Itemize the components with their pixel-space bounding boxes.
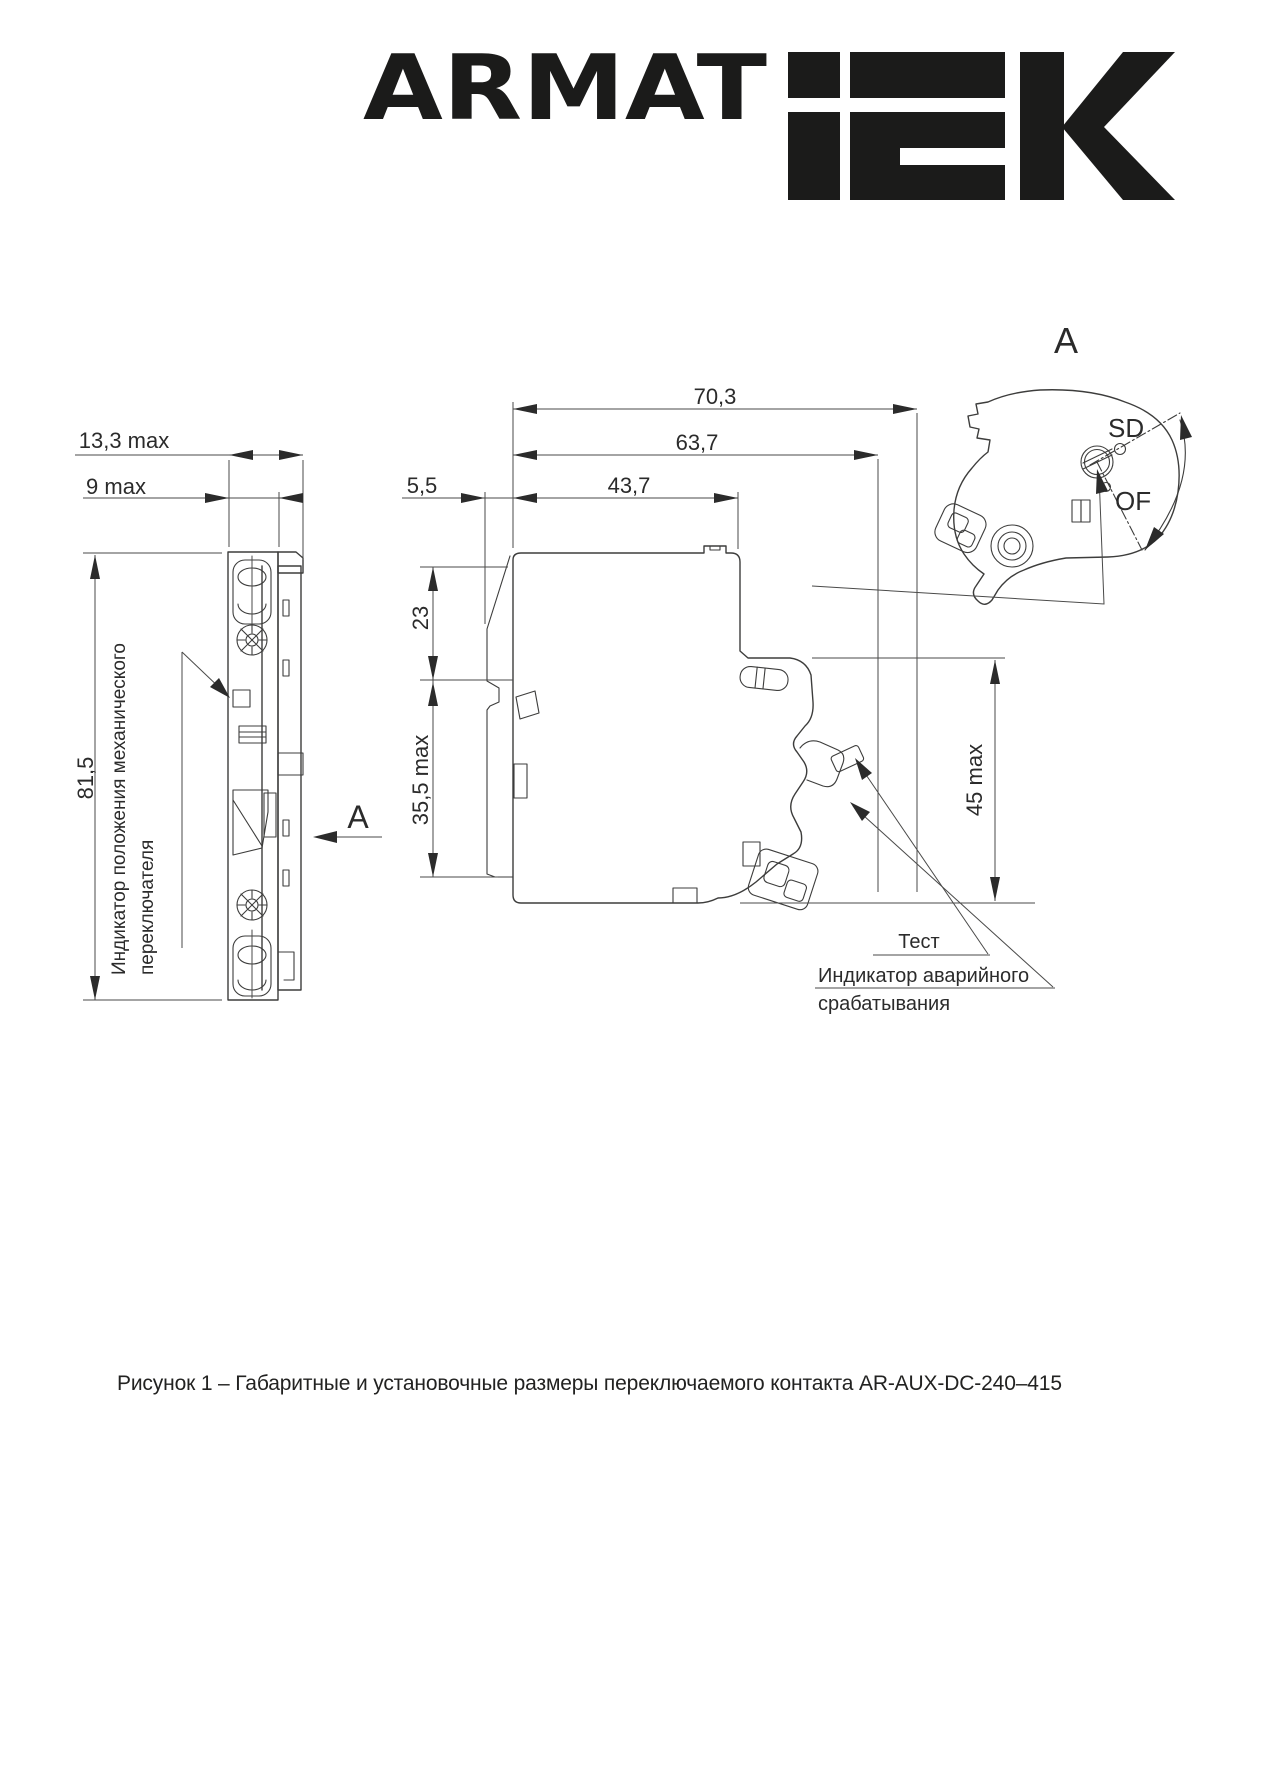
trip-indicator-label-line1: Индикатор аварийного	[818, 965, 1029, 987]
front-view-details	[233, 556, 303, 998]
dimension-arrow-icon	[428, 682, 438, 706]
rotation-arrow-icon	[1145, 527, 1164, 550]
dim-9-max: 9 max	[83, 474, 303, 547]
trip-indicator-callout: Индикатор аварийного срабатывания	[815, 802, 1055, 1015]
selector-leader	[812, 469, 1108, 604]
document-page: ARMAT	[0, 0, 1280, 1788]
dimension-arrow-icon	[205, 493, 229, 503]
dim-70-3-value: 70,3	[694, 384, 737, 409]
mechanical-indicator-label-line1: Индикатор положения механического	[109, 643, 130, 975]
dim-63-7-value: 63,7	[676, 430, 719, 455]
section-arrow-icon	[313, 831, 337, 843]
mechanical-indicator-window	[233, 690, 250, 707]
detail-view-title: A	[1054, 320, 1078, 361]
mechanical-indicator-label-line2: переключателя	[137, 840, 158, 975]
dim-9-max-value: 9 max	[86, 474, 146, 499]
side-view: 70,3 63,7 5,5 43,7 23	[402, 384, 1055, 1015]
dim-70-3: 70,3	[513, 384, 917, 892]
armat-logo-text: ARMAT	[363, 36, 767, 141]
dimension-arrow-icon	[513, 450, 537, 460]
dim-63-7: 63,7	[513, 402, 878, 892]
technical-drawing: ARMAT	[0, 0, 1280, 1788]
dimension-arrow-icon	[279, 450, 303, 460]
dimension-arrow-icon	[90, 555, 100, 579]
dimension-arrow-icon	[990, 877, 1000, 901]
dimension-arrow-icon	[714, 493, 738, 503]
trip-indicator-label-line2: срабатывания	[818, 993, 950, 1015]
section-arrow-label: A	[347, 799, 369, 835]
dimension-arrow-icon	[990, 660, 1000, 684]
dim-5-5-value: 5,5	[407, 473, 438, 498]
test-label: Тест	[898, 931, 939, 953]
armat-logo: ARMAT	[363, 36, 767, 141]
dimension-arrow-icon	[513, 493, 537, 503]
front-view-device-outline	[228, 552, 303, 1000]
dimension-arrow-icon	[513, 404, 537, 414]
dim-81-5-value: 81,5	[73, 757, 98, 800]
dimension-arrow-icon	[90, 976, 100, 1000]
dimension-arrow-icon	[854, 450, 878, 460]
dimension-arrow-icon	[428, 853, 438, 877]
section-arrow-a: A	[313, 799, 382, 843]
of-position-label: OF	[1115, 486, 1151, 516]
dimension-arrow-icon	[279, 493, 303, 503]
dim-23-and-35-5: 23 35,5 max	[408, 567, 513, 877]
figure-caption: Рисунок 1 – Габаритные и установочные ра…	[117, 1372, 1062, 1395]
dimension-arrow-icon	[428, 656, 438, 680]
side-view-details	[514, 546, 865, 912]
dimension-arrow-icon	[893, 404, 917, 414]
dim-23-value: 23	[408, 606, 433, 630]
dim-45-max: 45 max	[740, 658, 1035, 903]
leader-arrow-icon	[855, 758, 872, 780]
dim-5-5-and-43-7: 5,5 43,7	[402, 473, 738, 624]
dim-13-3-max-value: 13,3 max	[79, 428, 170, 453]
sd-position-label: SD	[1108, 413, 1144, 443]
iek-logo-icon	[788, 52, 1175, 200]
front-view: 13,3 max 9 max 81,5 Индикатор положени	[73, 428, 382, 1000]
detail-view-a: A SD OF	[812, 320, 1192, 604]
mechanical-indicator-label: Индикатор положения механического перекл…	[109, 643, 230, 975]
leader-arrow-icon	[1096, 469, 1108, 494]
dim-43-7-value: 43,7	[608, 473, 651, 498]
dimension-arrow-icon	[461, 493, 485, 503]
dimension-arrow-icon	[428, 567, 438, 591]
dim-45-max-value: 45 max	[962, 744, 987, 816]
dimension-arrow-icon	[229, 450, 253, 460]
side-view-front-bezel	[487, 556, 513, 877]
dim-35-5-value: 35,5 max	[408, 735, 433, 826]
rotation-arrow-icon	[1180, 415, 1192, 440]
